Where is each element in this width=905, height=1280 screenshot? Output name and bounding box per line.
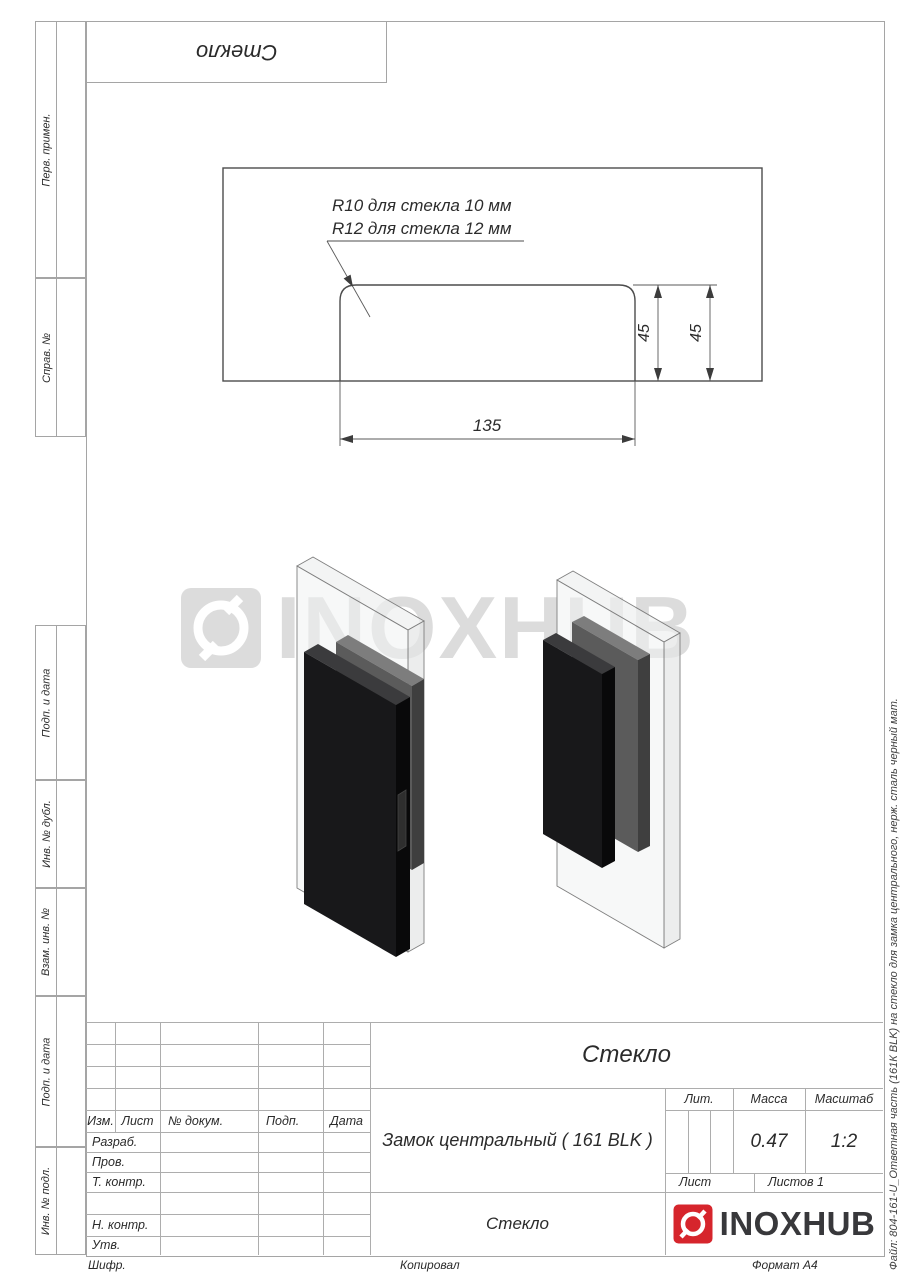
copied-label: Копировал [400,1258,460,1272]
sidebar-cell-label: Взам. инв. № [41,908,53,976]
sidebar-cell-label: Подп. и дата [41,668,53,737]
scale-value: 1:2 [805,1110,883,1173]
sidebar-cell-podp-i-data-1: Подп. и дата [35,625,86,780]
cipher-label: Шифр. [88,1258,126,1272]
sheets-label-cell: Листов 1 [768,1173,878,1192]
sidebar-cell-sprav-no: Справ. № [35,278,86,437]
sidebar-cell-label: Подп. и дата [41,1037,53,1106]
rev-header-podp: Подп. [266,1110,323,1132]
sidebar-cell-perv-primen: Перв. примен. [35,21,86,278]
sidebar-cell-inv-no-podl: Инв. № подл. [35,1147,86,1255]
material-cell: Стекло [370,1192,665,1255]
drawing-sheet: INOXHUB 135 45 45 R10 для стекла 10 мм R… [0,0,905,1280]
grid-line [754,1173,755,1192]
scale-header: Масштаб [805,1088,883,1110]
doc-title-cell: Стекло [370,1022,883,1088]
sidebar-cell-label: Справ. № [41,333,53,383]
sign-row-label: Н. контр. [92,1214,162,1236]
rev-header-data: Дата [330,1110,370,1132]
top-title: Стекло [196,39,277,65]
grid-line [86,1066,370,1067]
sidebar-cell-inv-no-dubl: Инв. № дубл. [35,780,86,888]
logo-cell: INOXHUB [665,1192,883,1255]
inoxhub-logo-icon [673,1204,713,1244]
rev-header-izm: Изм. [86,1110,115,1132]
mass-value: 0.47 [733,1110,805,1173]
mass-header: Масса [733,1088,805,1110]
sidebar-cell-label: Инв. № подл. [41,1167,53,1235]
sign-row-label: Разраб. [92,1132,162,1152]
sign-row-label: Пров. [92,1152,162,1172]
grid-line [688,1110,689,1173]
grid-line [323,1022,324,1255]
sheet-label-cell: Лист [679,1173,749,1192]
format-label: Формат А4 [752,1258,818,1272]
grid-line [86,1044,370,1045]
grid-line [258,1022,259,1255]
sign-row-label: Утв. [92,1236,162,1255]
side-note: Файл: 804-161-U_Ответная часть (161К BLK… [888,742,900,1270]
sign-row-label: Т. контр. [92,1172,162,1192]
rev-header-list: Лист [115,1110,160,1132]
doc-name-cell: Замок центральный ( 161 BLK ) [370,1088,665,1192]
grid-line [710,1110,711,1173]
sidebar-cell-podp-i-data-2: Подп. и дата [35,996,86,1147]
sign-row-label [92,1192,162,1214]
sidebar-cell-label: Инв. № дубл. [41,800,53,868]
top-title-box: Стекло [86,21,387,83]
sidebar-cell-label: Перв. примен. [41,113,53,186]
rev-header-dokum: № докум. [168,1110,258,1132]
sidebar-cell-vzam-inv-no: Взам. инв. № [35,888,86,996]
lit-header: Лит. [665,1088,733,1110]
inoxhub-logo-text: INOXHUB [720,1205,876,1243]
